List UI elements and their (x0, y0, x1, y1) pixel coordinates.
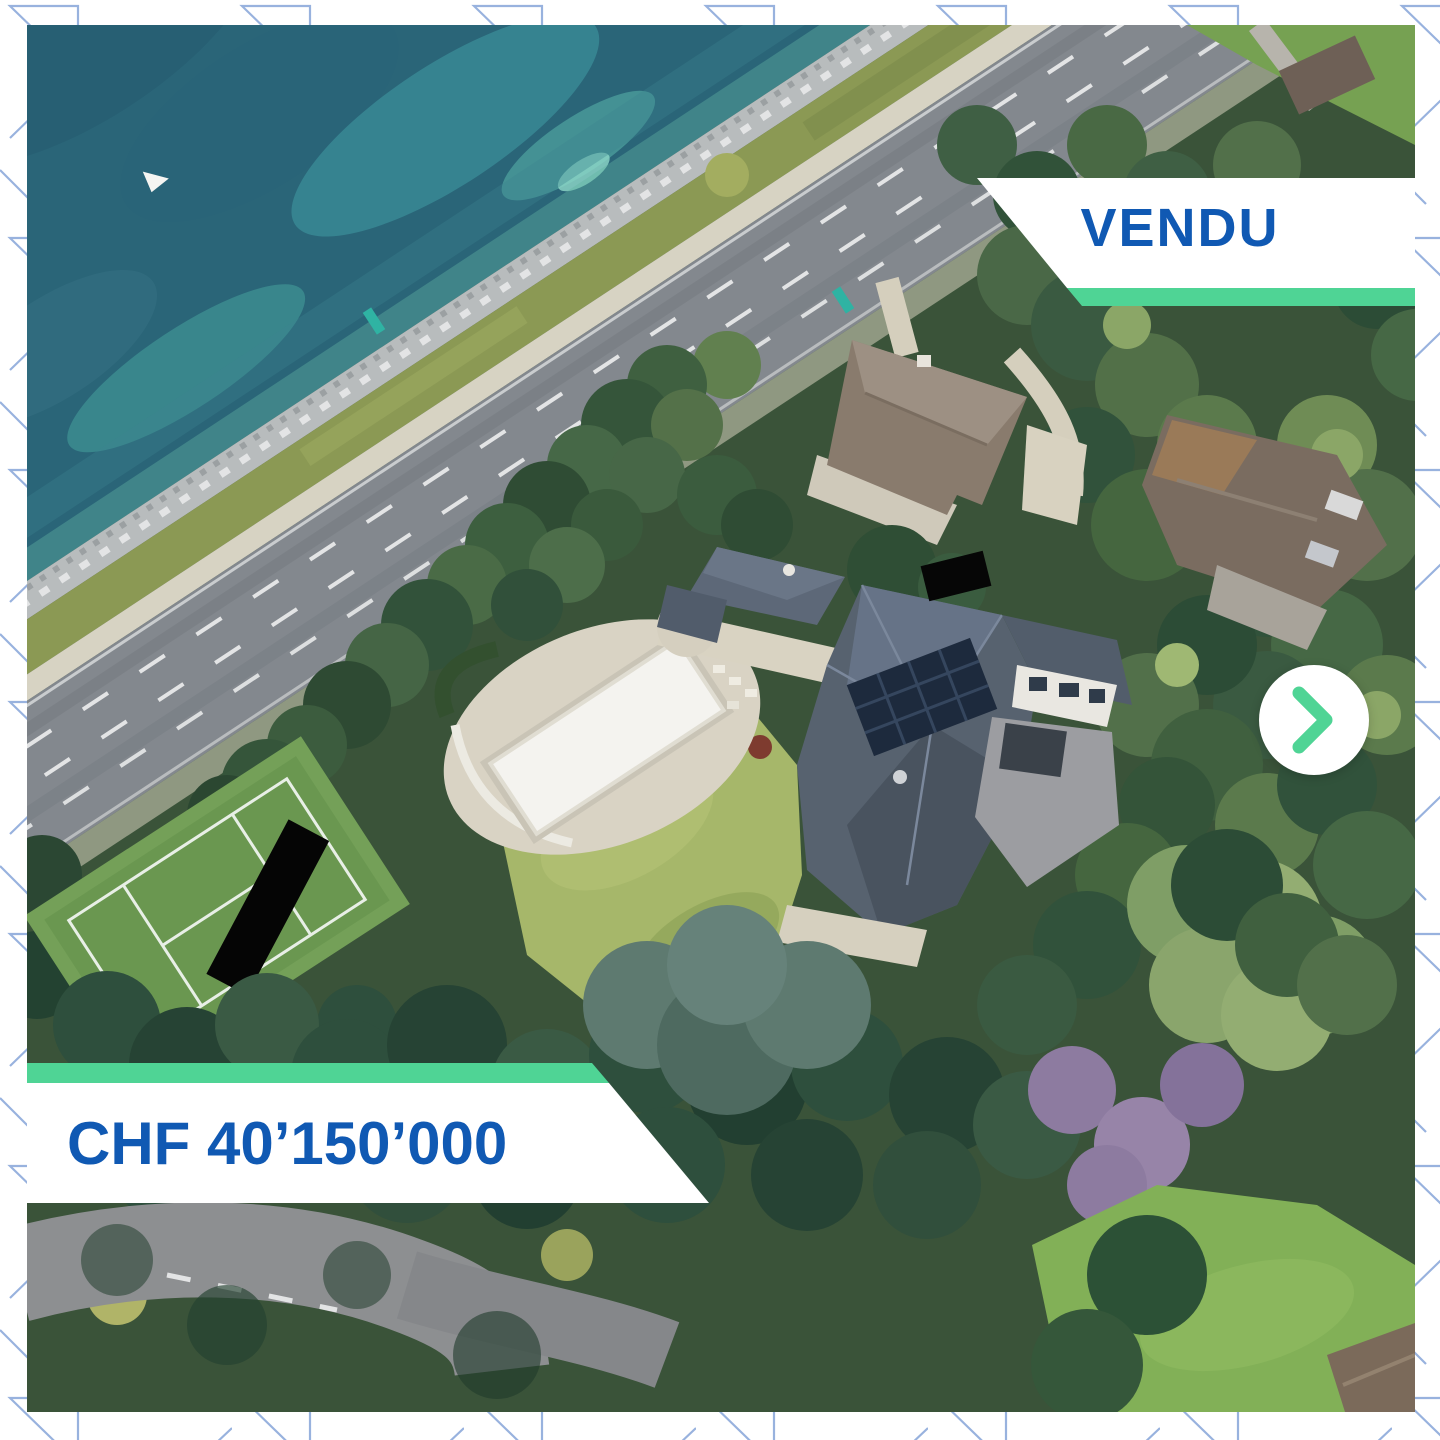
chevron-right-icon (1259, 665, 1369, 775)
status-banner-label: VENDU (1020, 195, 1340, 261)
price-banner: CHF 40’150’000 (27, 1063, 717, 1203)
post-card: VENDU CHF 40’150’000 (0, 0, 1440, 1440)
next-button[interactable] (1259, 665, 1369, 775)
price-banner-label: CHF 40’150’000 (67, 1109, 507, 1179)
status-banner: VENDU (960, 178, 1415, 306)
